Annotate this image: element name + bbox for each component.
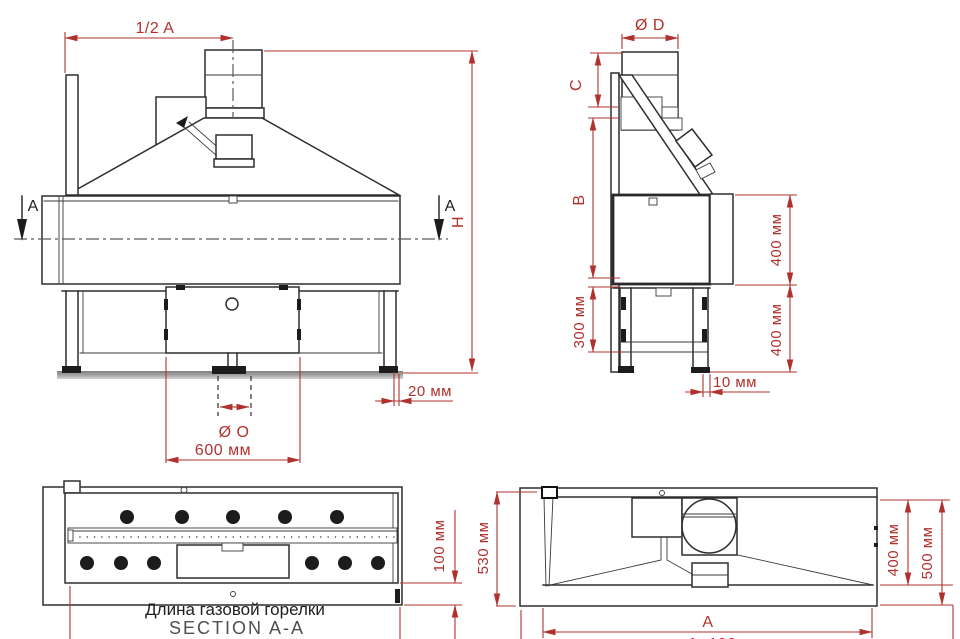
plan-view: 530 мм 400 мм 500 мм A A+100 <box>475 487 953 639</box>
side-view: Ø D C B 300 мм 400 мм <box>568 17 797 397</box>
dim-530mm-label: 530 мм <box>475 522 492 575</box>
dim-half-a-label: 1/2 A <box>136 20 175 37</box>
side-firebox <box>613 195 710 284</box>
plan-corner-block <box>542 487 557 498</box>
plan-junction-box <box>632 491 682 538</box>
side-dim-firebox-400: 400 мм <box>735 195 797 285</box>
dim-400mm-plan-label: 400 мм <box>885 524 902 577</box>
dim-300mm-label: 300 мм <box>571 296 588 349</box>
plan-dim-width: A <box>543 608 872 638</box>
front-burner-pipe <box>212 353 246 374</box>
dim-10mm-label: 10 мм <box>713 374 757 391</box>
section-title: SECTION A-A <box>169 618 305 638</box>
side-stand <box>613 288 710 373</box>
front-burner-panel <box>164 285 301 353</box>
dim-b-label: B <box>571 194 588 205</box>
section-label-left: A <box>28 198 39 215</box>
side-dim-back-offset: 10 мм <box>685 374 770 397</box>
side-rear-panel <box>710 194 733 284</box>
section-perforated-strip <box>68 528 397 543</box>
front-control-box <box>214 135 254 167</box>
dim-500mm-label: 500 мм <box>919 527 936 580</box>
section-view: 100 мм Длина газовой горелки SECTION A-A <box>43 481 462 639</box>
dim-o-label: Ø O <box>219 424 250 441</box>
front-view: A A 1/2 A H 20 мм <box>14 20 478 463</box>
side-dim-stand-400: 400 мм <box>710 285 797 372</box>
dim-400mm-upper-label: 400 мм <box>768 214 785 267</box>
dim-100mm-label: 100 мм <box>431 520 448 573</box>
section-dim-depth: 100 мм <box>400 510 462 639</box>
dim-h-label: H <box>450 216 467 228</box>
plan-dim-width-overall: A+100 <box>521 605 953 639</box>
front-left-post <box>66 75 78 195</box>
section-label-right: A <box>445 198 456 215</box>
dim-20mm-label: 20 мм <box>408 383 452 400</box>
dim-a-label: A <box>702 614 713 631</box>
front-section-arrow-left: A <box>17 196 39 241</box>
front-firebox <box>42 196 400 284</box>
fireplace-technical-drawing: A A 1/2 A H 20 мм <box>0 0 960 639</box>
burner-length-caption: Длина газовой горелки <box>145 600 325 619</box>
plan-control-box <box>692 563 728 587</box>
dim-d-label: Ø D <box>635 17 665 34</box>
plan-flue-outlet <box>682 498 737 555</box>
front-dim-pipe-diameter: Ø O <box>219 407 250 441</box>
side-dim-flue-diameter: Ø D <box>622 17 678 49</box>
dim-600mm-label: 600 мм <box>195 442 251 459</box>
dim-c-label: C <box>568 79 585 91</box>
dim-400mm-lower-label: 400 мм <box>768 304 785 357</box>
front-pipe-projection <box>218 376 251 416</box>
section-corner-block <box>64 481 80 493</box>
